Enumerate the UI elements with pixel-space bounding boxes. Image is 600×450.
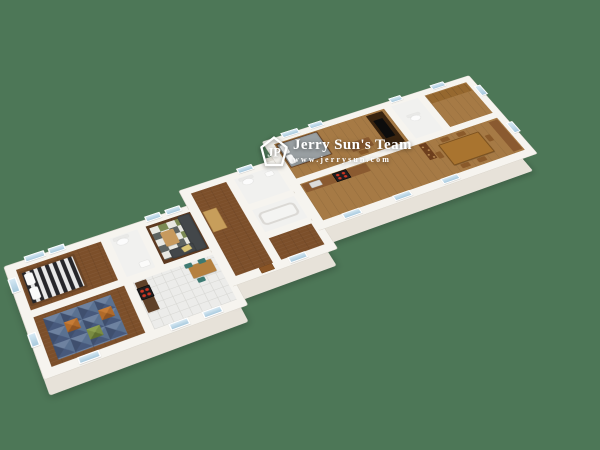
screenshot-root: { "scene": { "description": "3D isometri… <box>0 0 600 450</box>
chair <box>197 276 207 283</box>
jerry-sun-logo-icon: JP <box>260 136 288 167</box>
chair <box>460 162 471 169</box>
logo-monogram: JP <box>267 146 281 160</box>
toilet <box>409 114 422 122</box>
wardrobe <box>202 207 227 232</box>
sink <box>139 260 151 268</box>
bathtub <box>257 201 301 226</box>
sink <box>265 171 275 177</box>
floorplan-scene <box>0 0 600 450</box>
watermark-team-name: Jerry Sun's Team <box>293 138 412 154</box>
watermark-website: www.jerrysun.com <box>293 156 412 164</box>
watermark: JP Jerry Sun's Team www.jerrysun.com <box>260 136 412 167</box>
floorplan-3d <box>0 76 567 380</box>
pantry-shelf <box>418 143 437 160</box>
chair <box>476 156 487 163</box>
